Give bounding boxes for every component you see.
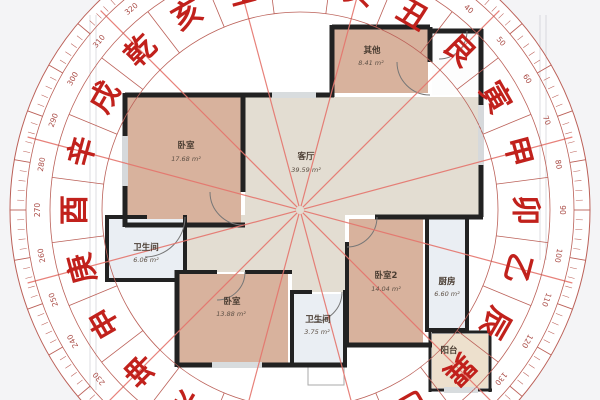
compass-mountain-char: 子 bbox=[285, 0, 315, 3]
room-area-bedroom1: 17.68 m² bbox=[171, 156, 201, 163]
compass-floorplan-graphic: 0102030405060708090100110120130140150160… bbox=[0, 0, 600, 400]
fengshui-floorplan-canvas: 0102030405060708090100110120130140150160… bbox=[0, 0, 600, 400]
degree-label: 90 bbox=[558, 205, 567, 215]
room-label-bath2: 卫生间 bbox=[305, 316, 331, 325]
entry-step bbox=[308, 367, 344, 385]
compass-mountain-char: 酉 bbox=[58, 195, 93, 225]
room-label-bedroom2: 卧室2 bbox=[375, 272, 398, 281]
room-area-bath2: 3.75 m² bbox=[304, 329, 329, 336]
degree-label: 80 bbox=[553, 159, 564, 170]
room-label-bedroom1: 卧室 bbox=[177, 142, 194, 151]
room-label-bedroom3: 卧室 bbox=[223, 298, 240, 307]
room-kitchen bbox=[429, 219, 465, 328]
room-area-living: 39.59 m² bbox=[291, 167, 321, 174]
room-area-bedroom2: 14.04 m² bbox=[371, 286, 401, 293]
room-area-bath1: 6.06 m² bbox=[133, 257, 158, 264]
room-label-kitchen: 厨房 bbox=[438, 278, 455, 287]
room-bedroom3 bbox=[179, 274, 288, 363]
room-area-other: 8.41 m² bbox=[358, 60, 383, 67]
room-bedroom2 bbox=[349, 219, 423, 343]
degree-label: 270 bbox=[33, 203, 42, 218]
room-label-balcony: 阳台 bbox=[440, 347, 457, 356]
compass-mountain-char: 卯 bbox=[508, 195, 543, 225]
room-area-bedroom3: 13.88 m² bbox=[216, 311, 246, 318]
room-label-other: 其他 bbox=[363, 47, 380, 56]
room-living bbox=[245, 97, 479, 215]
room-label-living: 客厅 bbox=[297, 153, 314, 162]
room-area-kitchen: 6.60 m² bbox=[434, 291, 459, 298]
room-label-bath1: 卫生间 bbox=[133, 244, 159, 253]
